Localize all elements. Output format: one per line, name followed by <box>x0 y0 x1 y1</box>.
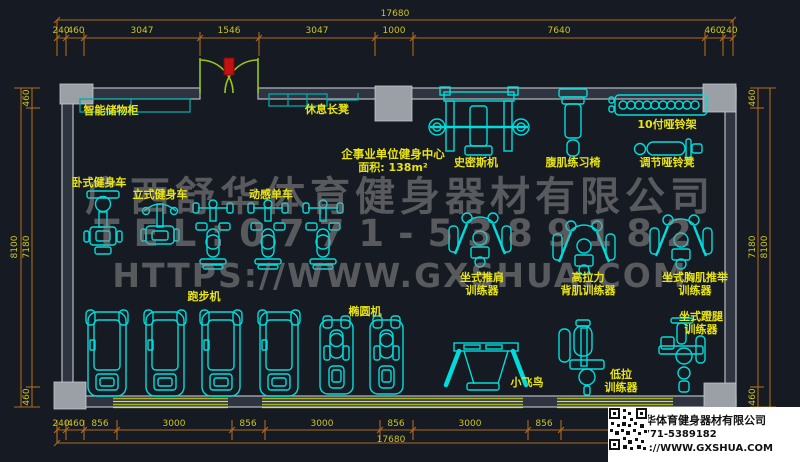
label-low-pull: 低拉 训练器 <box>605 369 638 394</box>
dim-top-seg: 7640 <box>548 26 571 36</box>
dim-bottom-seg: 856 <box>91 419 108 429</box>
dim-top-seg: 460 <box>67 26 84 36</box>
qr-code-icon <box>608 407 648 451</box>
low-pull-shape <box>559 320 604 395</box>
label-shoulder-press: 坐式推肩 训练器 <box>460 272 504 297</box>
dim-top-seg: 240 <box>720 26 737 36</box>
label-rest-bench: 休息长凳 <box>305 104 349 117</box>
dim-bottom-seg: 856 <box>239 419 256 429</box>
dim-top-seg: 1546 <box>218 26 241 36</box>
label-ab-chair: 腹肌练习椅 <box>546 157 601 170</box>
door-red-marker <box>224 58 234 75</box>
dim-bottom-seg: 856 <box>387 419 404 429</box>
title-block: 广西舒华体育健身器材有限公司 TEL:0771-5389182 HTTPS://… <box>608 407 800 462</box>
treadmill-shapes <box>86 310 300 396</box>
label-dumbbell-rack: 10付哑铃架 <box>637 119 696 132</box>
watermark-phone: TEL:0771-5389182 <box>94 212 705 255</box>
label-treadmill: 跑步机 <box>188 291 221 304</box>
label-spin-bike: 动感单车 <box>249 189 293 202</box>
dim-left-seg: 460 <box>22 89 32 106</box>
room-area: 面积: 138m² <box>358 159 427 175</box>
dim-bottom-seg: 856 <box>535 419 552 429</box>
label-upright-bike: 立式健身车 <box>133 189 188 202</box>
dim-right-seg: 460 <box>748 89 758 106</box>
dim-right-total: 8100 <box>760 236 770 259</box>
dim-right-seg: 7180 <box>748 236 758 259</box>
elliptical-shapes <box>320 316 403 394</box>
dim-bottom-total: 17680 <box>377 435 406 445</box>
dim-top-total: 17680 <box>381 9 410 19</box>
label-cable-cross: 小飞鸟 <box>511 377 544 390</box>
label-chest-press: 坐式胸肌推举 训练器 <box>662 272 728 297</box>
dim-bottom-seg: 3000 <box>311 419 334 429</box>
label-elliptical: 椭圆机 <box>349 306 382 319</box>
dim-top-seg: 3047 <box>306 26 329 36</box>
double-door <box>200 58 258 93</box>
dim-bottom-seg: 460 <box>67 419 84 429</box>
label-locker: 智能储物柜 <box>84 105 139 118</box>
dim-top-seg: 460 <box>704 26 721 36</box>
dim-top-seg: 1000 <box>383 26 406 36</box>
label-smith-machine: 史密斯机 <box>454 157 498 170</box>
label-lat-pull: 高拉力 背肌训练器 <box>561 272 616 297</box>
label-recumbent-bike: 卧式健身车 <box>72 177 127 190</box>
label-dumbbell-bench: 调节哑铃凳 <box>640 157 695 170</box>
cad-floorplan-canvas: 17680 240 460 3047 1546 3047 1000 7640 4… <box>0 0 800 462</box>
dim-left-seg: 7180 <box>22 236 32 259</box>
dim-right-seg: 460 <box>748 388 758 405</box>
dim-bottom-seg: 3000 <box>459 419 482 429</box>
dim-left-seg: 460 <box>22 388 32 405</box>
dim-bottom-seg: 3000 <box>163 419 186 429</box>
dim-top-seg: 3047 <box>131 26 154 36</box>
dim-left-total: 8100 <box>10 236 20 259</box>
label-leg-press: 坐式蹬腿 训练器 <box>679 311 723 336</box>
